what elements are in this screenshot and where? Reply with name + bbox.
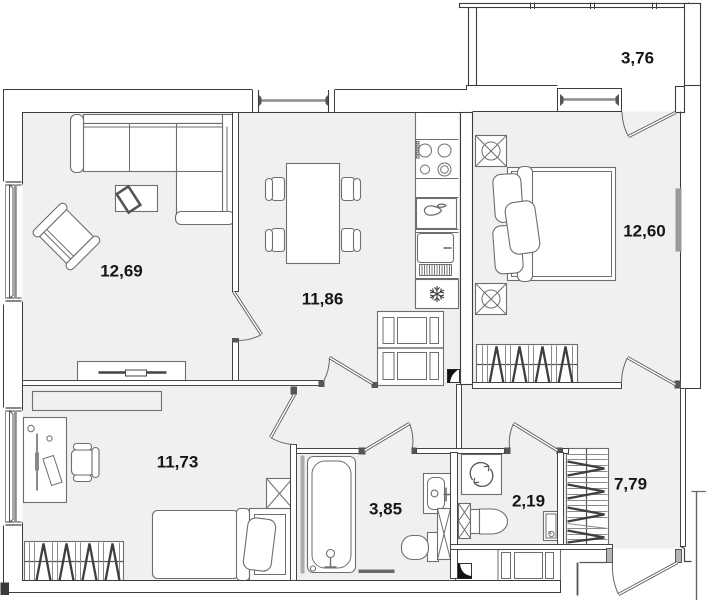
svg-text:11,73: 11,73 [157, 453, 199, 472]
svg-text:12,60: 12,60 [623, 222, 666, 241]
svg-text:11,86: 11,86 [302, 290, 344, 309]
svg-text:12,69: 12,69 [100, 262, 143, 281]
svg-text:3,85: 3,85 [369, 500, 402, 519]
svg-text:7,79: 7,79 [614, 475, 647, 494]
svg-text:2,19: 2,19 [512, 492, 545, 511]
svg-text:3,76: 3,76 [621, 49, 654, 68]
